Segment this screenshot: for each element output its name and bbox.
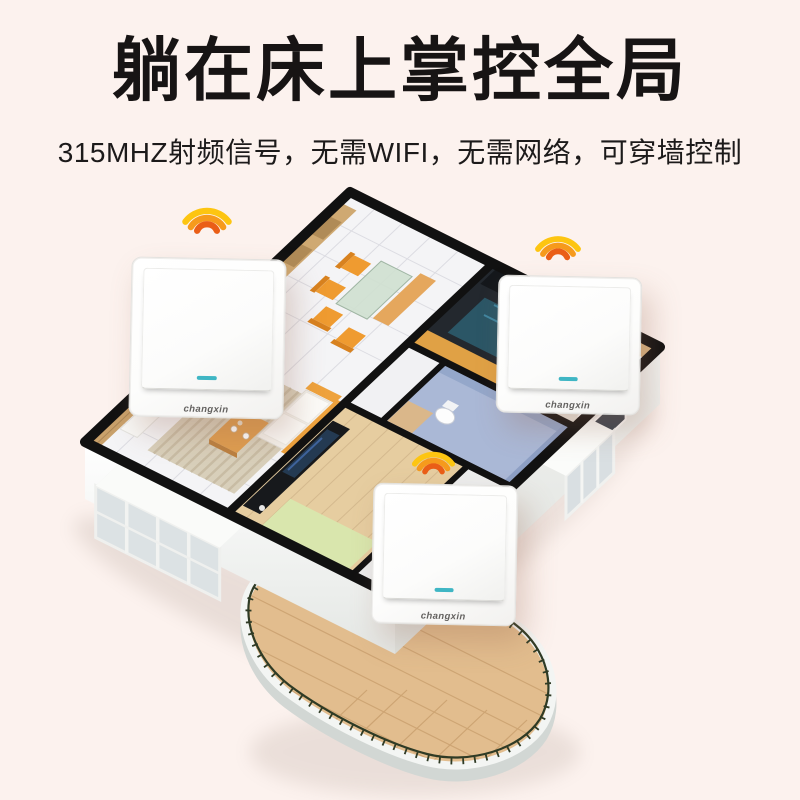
switch-rocker[interactable] <box>141 268 275 392</box>
switch-rocker[interactable] <box>507 285 631 392</box>
rf-signal-icon <box>410 442 457 481</box>
brand-logo: changxin <box>497 398 639 412</box>
wireless-switch-right[interactable]: changxin <box>496 275 643 416</box>
apartment-cutaway-illustration <box>0 0 800 800</box>
led-indicator <box>559 377 578 381</box>
switch-rocker[interactable] <box>382 493 507 602</box>
wireless-switch-left[interactable]: changxin <box>128 256 286 419</box>
brand-logo: changxin <box>372 609 515 623</box>
rf-signal-icon <box>180 196 234 242</box>
brand-logo: changxin <box>129 402 282 416</box>
led-indicator <box>196 376 217 380</box>
led-indicator <box>434 587 453 591</box>
product-banner: 躺在床上掌控全局 315MHZ射频信号，无需WIFI，无需网络，可穿墙控制 <box>0 0 800 800</box>
rf-signal-icon <box>533 226 583 267</box>
wireless-switch-center[interactable]: changxin <box>371 482 519 626</box>
